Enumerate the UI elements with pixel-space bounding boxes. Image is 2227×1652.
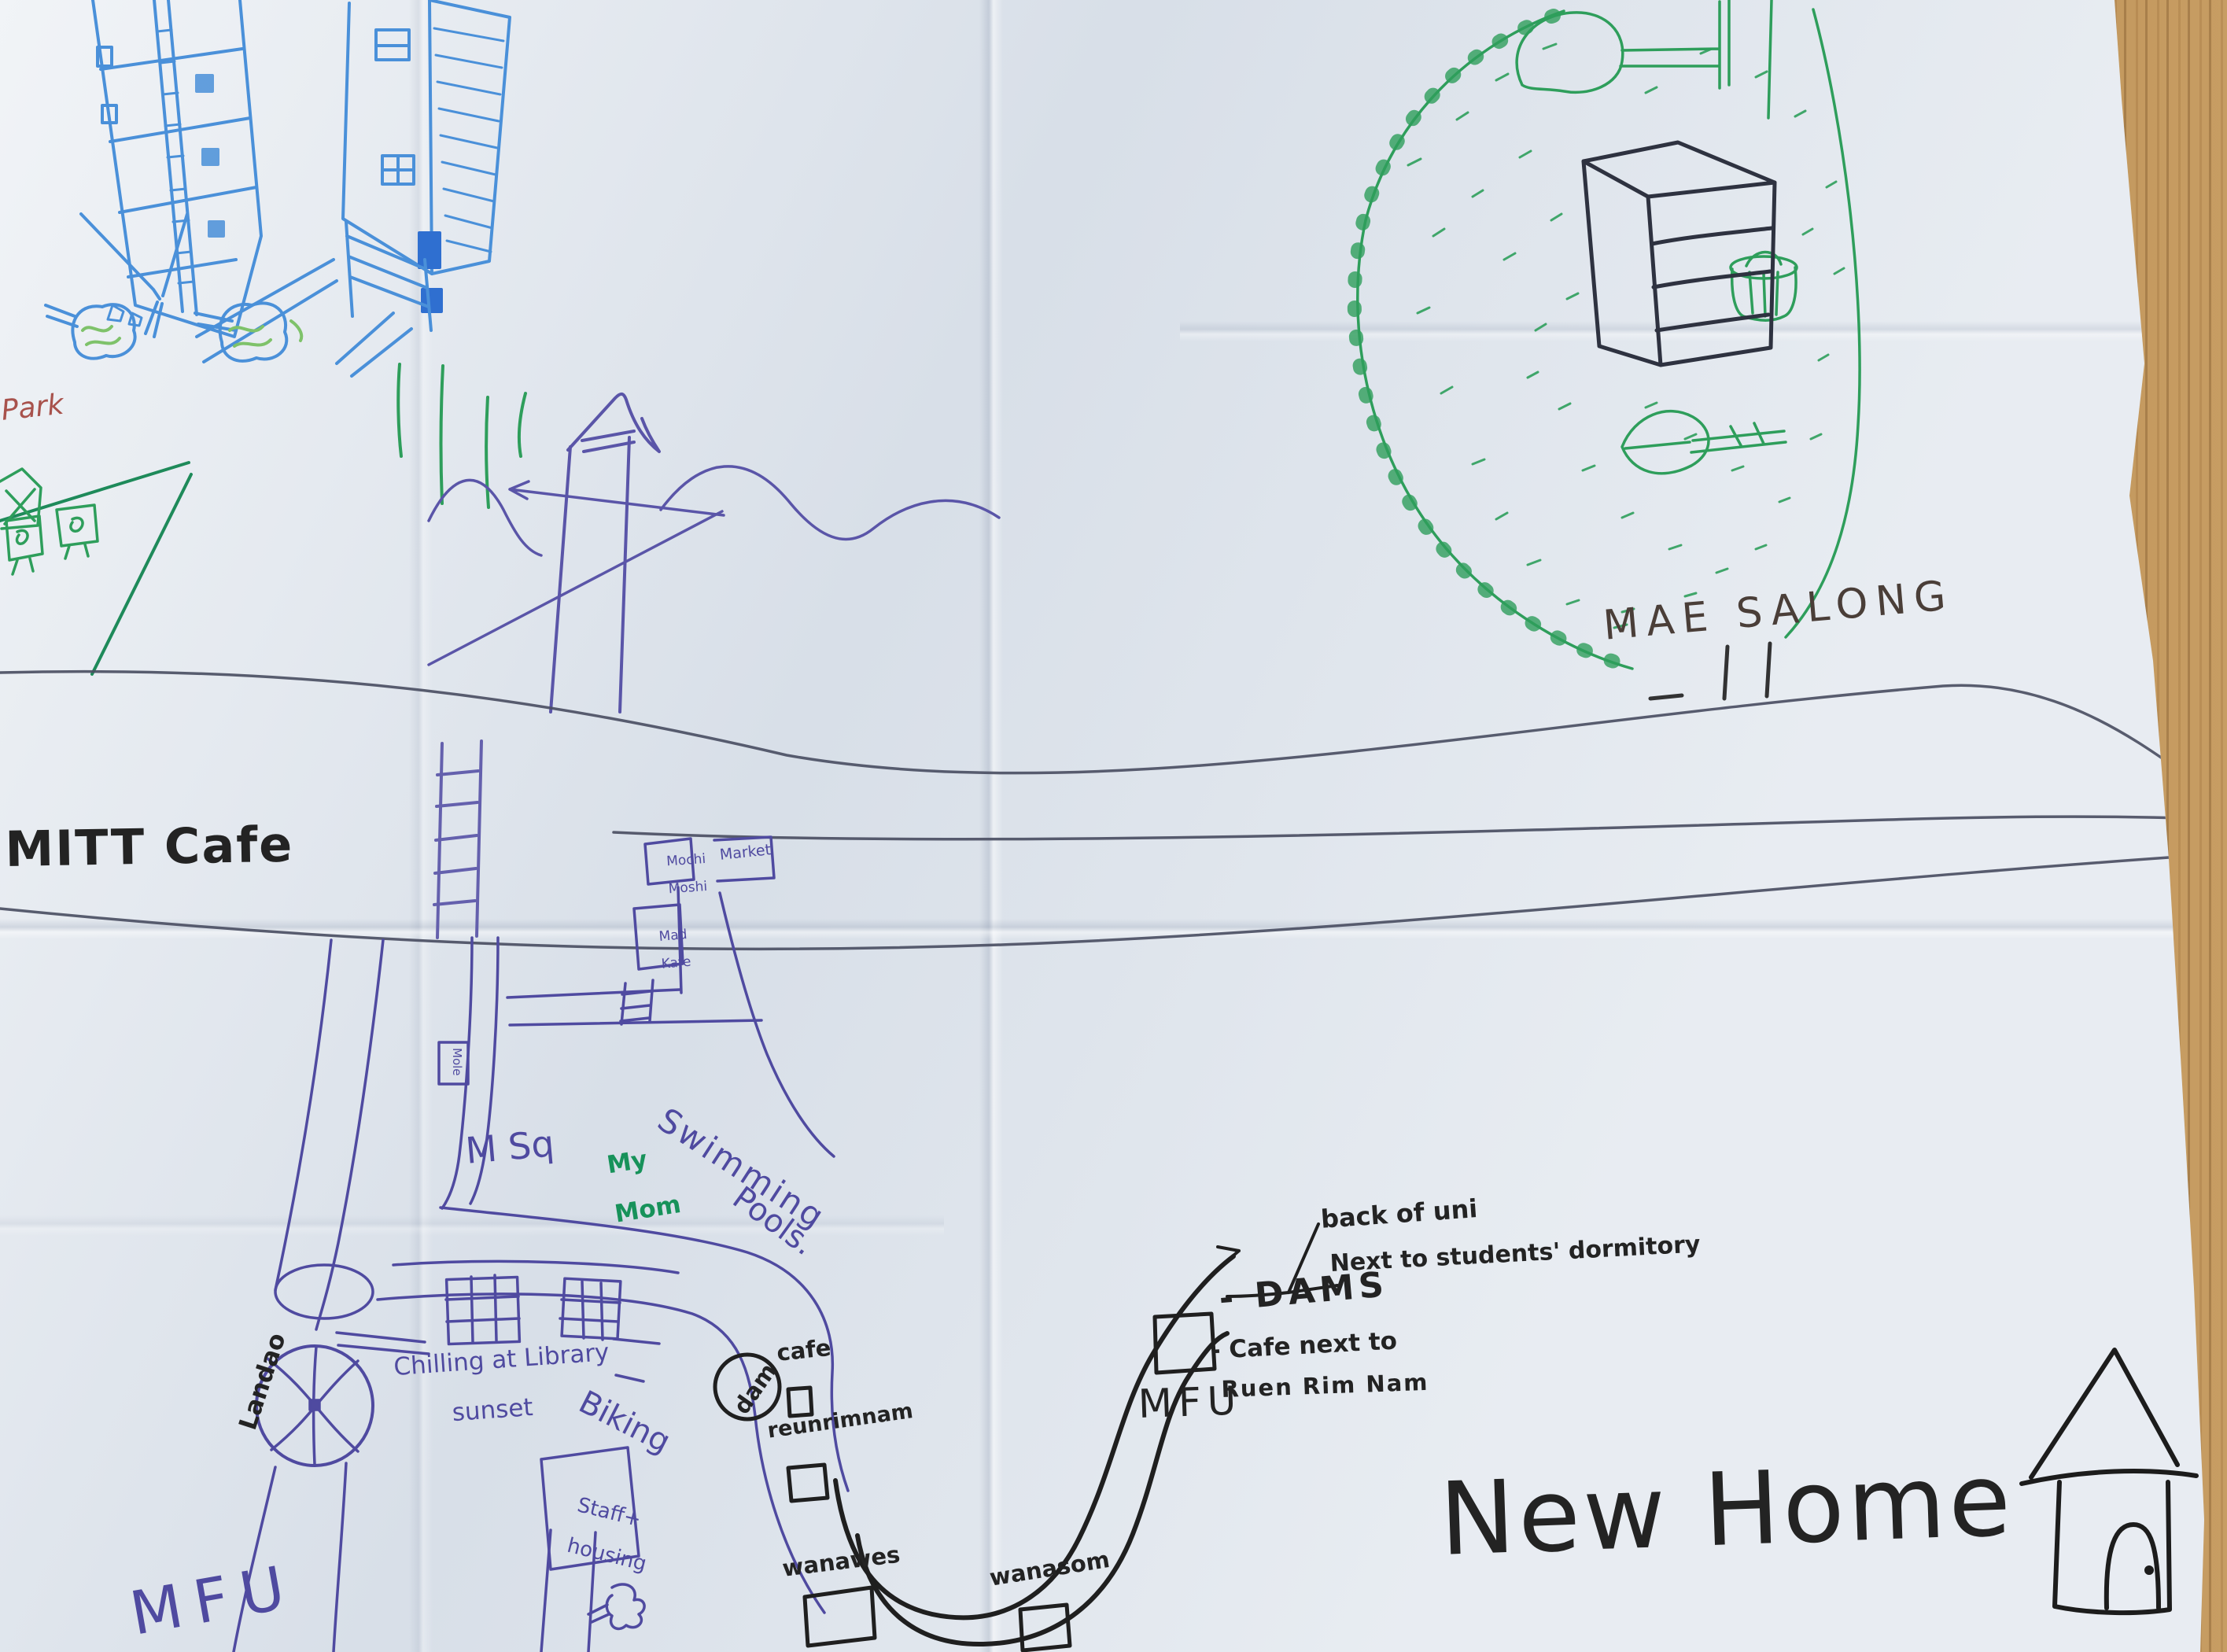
cafe-stop-label: cafe — [776, 1337, 832, 1366]
dorm-buildings-sketch — [46, 0, 510, 376]
paper-map: Park MITT Cafe MAE SALONG Mochi Moshi Ma… — [0, 0, 2227, 1652]
reunrimnam-stop-icon — [788, 1465, 828, 1501]
green-yard-sketch — [0, 364, 525, 674]
wanasom-stop-icon — [1020, 1605, 1070, 1650]
market-roads-sketch — [234, 837, 834, 1652]
park-label: Park — [0, 391, 65, 426]
library-note-label: Chilling at Library sunset — [360, 1315, 615, 1457]
trees-sketch — [72, 303, 301, 361]
mochi-stall-label: Mochi Moshi — [648, 839, 709, 911]
dams-box-icon — [1155, 1314, 1215, 1373]
cafe-stop-icon — [788, 1388, 812, 1416]
crate-icon — [1584, 142, 1775, 365]
main-road-sketch — [0, 643, 2227, 949]
wanawes-stop-icon — [805, 1587, 875, 1646]
river-road-sketch — [715, 1247, 1239, 1650]
m-sq-label: M Sq — [464, 1125, 555, 1170]
mountains-sketch — [429, 466, 999, 665]
house-icon — [2022, 1350, 2196, 1613]
mitt-cafe-label: MITT Cafe — [5, 820, 294, 875]
mad-kafe-stall-label: Mad Kafe — [640, 915, 693, 986]
new-home-title: New Home — [1438, 1450, 2015, 1573]
mole-stop-label: Mole — [451, 1048, 463, 1076]
map-drawing — [0, 0, 2227, 1652]
mae-salong-grove-sketch — [1355, 0, 1860, 669]
